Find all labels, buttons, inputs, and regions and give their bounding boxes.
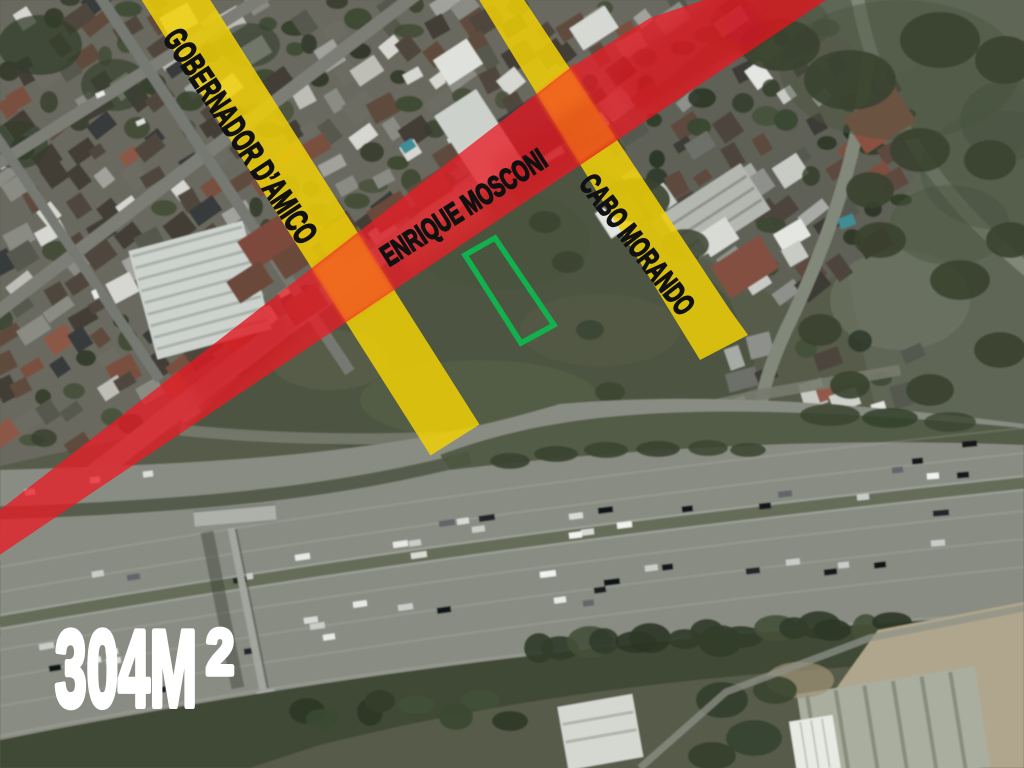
svg-text:2: 2 [206, 616, 234, 688]
svg-text:304M: 304M [55, 609, 197, 730]
